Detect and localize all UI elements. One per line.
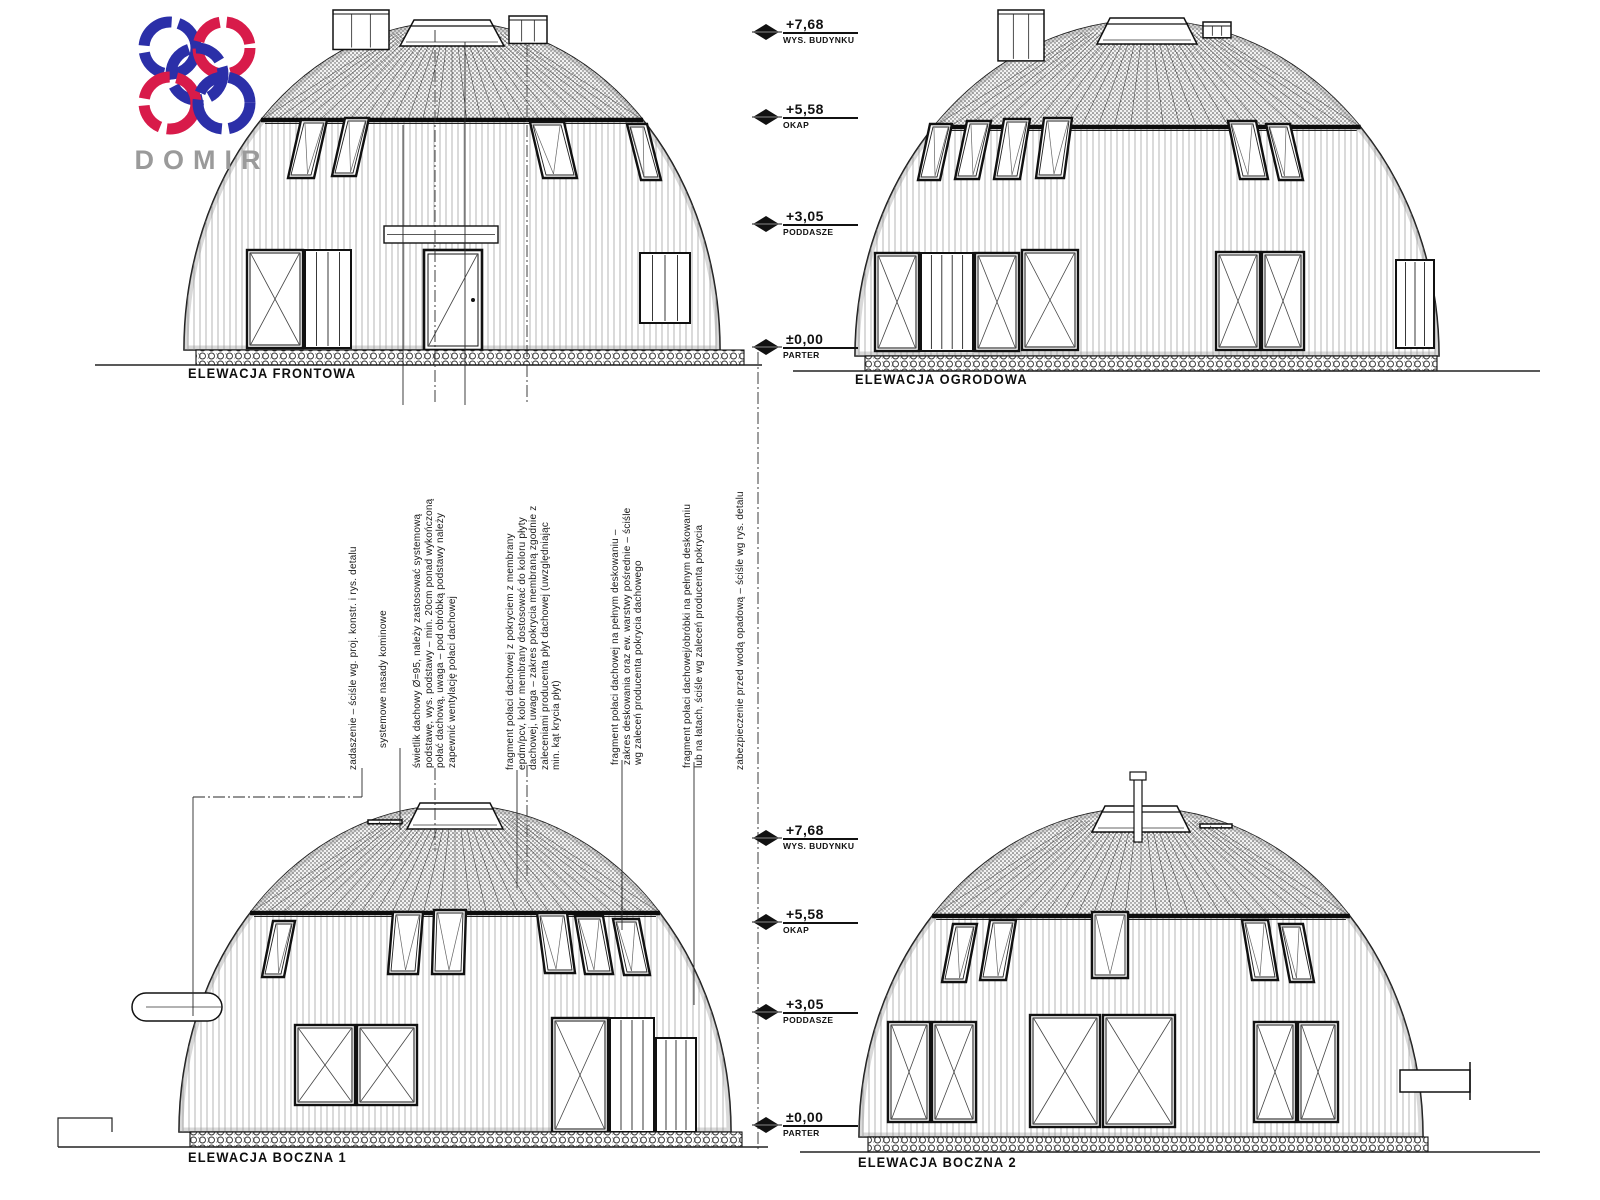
level-label: PARTER [783, 350, 858, 360]
level-value: ±0,00 [783, 331, 858, 349]
elevation-marker: +3,05PODDASZE [752, 208, 858, 237]
level-marker-icon [752, 1003, 782, 1021]
level-label: PODDASZE [783, 227, 858, 237]
logo-rings-icon [123, 12, 273, 140]
roof-annotation: świetlik dachowy Ø=95, należy zastosować… [412, 413, 458, 768]
elevation-label: ELEWACJA BOCZNA 1 [188, 1150, 347, 1165]
elevation-marker: +5,58OKAP [752, 101, 858, 130]
roof-annotation: zabezpieczenie przed wodą opadową – ściś… [735, 415, 747, 770]
dome-elewacja-ogrodowa [793, 0, 1540, 371]
logo-text: DOMIR [103, 145, 293, 176]
level-value: +7,68 [783, 822, 858, 840]
dome-elewacja-boczna-2 [800, 772, 1540, 1152]
level-marker-icon [752, 829, 782, 847]
elevation-label: ELEWACJA OGRODOWA [855, 372, 1028, 387]
elevation-marker: ±0,00PARTER [752, 1109, 858, 1138]
elevation-label: ELEWACJA BOCZNA 2 [858, 1155, 1017, 1170]
level-label: PODDASZE [783, 1015, 858, 1025]
level-value: +5,58 [783, 101, 858, 119]
roof-annotation: fragment połaci dachowej z pokryciem z m… [505, 405, 563, 770]
dome-elewacja-boczna-1 [58, 771, 768, 1147]
elevation-marker: ±0,00PARTER [752, 331, 858, 360]
roof-annotation: zadaszenie – ściśle wg. proj. konstr. i … [348, 410, 360, 770]
domir-logo: DOMIR [103, 12, 293, 176]
roof-annotation: systemowe nasady kominowe [378, 418, 390, 748]
blueprint-canvas: DOMIR ELEWACJA FRONTOWAELEWACJA OGRODOWA… [0, 0, 1600, 1200]
level-label: WYS. BUDYNKU [783, 841, 858, 851]
level-value: +7,68 [783, 16, 858, 34]
level-value: +5,58 [783, 906, 858, 924]
roof-annotation: fragment połaci dachowej/obróbki na pełn… [682, 418, 705, 768]
level-marker-icon [752, 338, 782, 356]
elevation-marker: +7,68WYS. BUDYNKU [752, 822, 858, 851]
level-marker-icon [752, 913, 782, 931]
level-label: WYS. BUDYNKU [783, 35, 858, 45]
level-marker-icon [752, 23, 782, 41]
level-marker-icon [752, 1116, 782, 1134]
level-label: OKAP [783, 925, 858, 935]
level-marker-icon [752, 215, 782, 233]
level-marker-icon [752, 108, 782, 126]
elevation-marker: +3,05PODDASZE [752, 996, 858, 1025]
roof-annotation: fragment połaci dachowej na pełnym desko… [610, 420, 645, 765]
elevation-marker: +7,68WYS. BUDYNKU [752, 16, 858, 45]
level-value: +3,05 [783, 996, 858, 1014]
level-value: ±0,00 [783, 1109, 858, 1127]
elevation-label: ELEWACJA FRONTOWA [188, 366, 356, 381]
level-label: PARTER [783, 1128, 858, 1138]
elevation-marker: +5,58OKAP [752, 906, 858, 935]
level-label: OKAP [783, 120, 858, 130]
level-value: +3,05 [783, 208, 858, 226]
